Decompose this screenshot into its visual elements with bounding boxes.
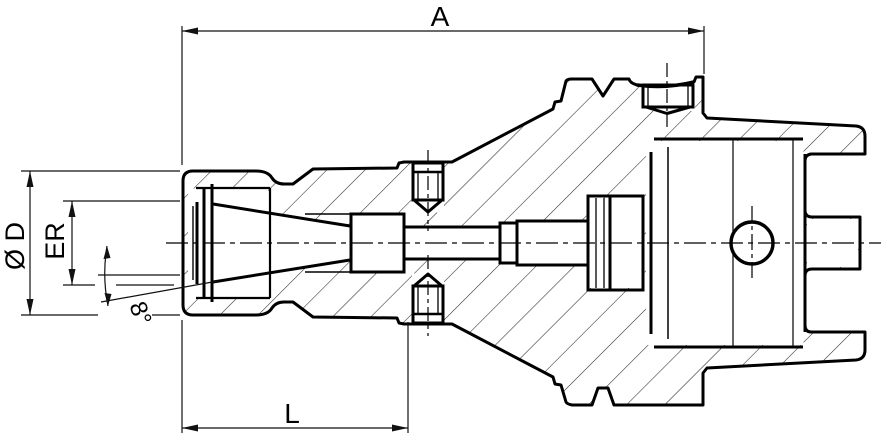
dim-label-a: A [431,1,450,32]
dimension-er [63,201,180,285]
arrowhead-down [105,293,112,306]
arrowhead-down [27,299,34,315]
arrowhead-right [688,28,704,35]
arrowhead-left [182,28,198,35]
dim-label-angle: 8° [123,298,156,329]
arrowhead-down [69,269,76,285]
drawing-canvas: A Ø D ER 8° L [0,0,886,438]
arrowhead-left [182,425,198,432]
dim-label-er: ER [40,222,70,260]
dim-label-d: Ø D [0,222,30,270]
arrowhead-up [27,171,34,187]
arrowhead-right [392,425,408,432]
arrowhead-up [69,201,76,217]
arrowhead-up [104,246,111,259]
technical-drawing: A Ø D ER 8° L [0,0,886,438]
dim-label-l: L [284,398,300,429]
